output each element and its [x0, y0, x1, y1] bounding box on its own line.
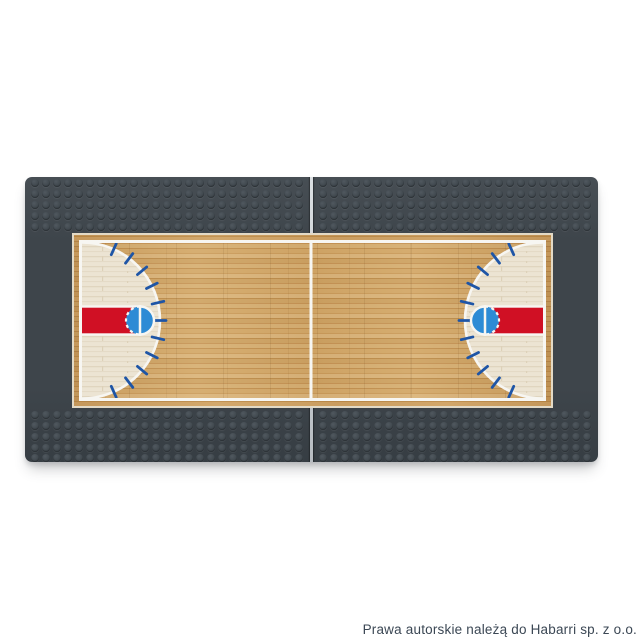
- stud: [207, 190, 215, 198]
- stud: [64, 444, 72, 452]
- stud: [352, 444, 360, 452]
- stud: [341, 201, 349, 209]
- stud: [528, 190, 536, 198]
- stud: [550, 454, 558, 462]
- stud: [495, 433, 503, 441]
- stud: [550, 422, 558, 430]
- stud: [141, 422, 149, 430]
- stud: [341, 433, 349, 441]
- stud: [352, 454, 360, 462]
- stud: [108, 433, 116, 441]
- stud: [174, 422, 182, 430]
- stud: [561, 444, 569, 452]
- stud: [473, 454, 481, 462]
- stud: [273, 212, 281, 220]
- stud: [561, 223, 569, 231]
- stud: [517, 201, 525, 209]
- stud: [385, 433, 393, 441]
- stud: [86, 433, 94, 441]
- stud: [119, 444, 127, 452]
- stud: [119, 411, 127, 419]
- stud: [31, 179, 39, 187]
- stud: [108, 179, 116, 187]
- stud: [152, 223, 160, 231]
- stud: [262, 212, 270, 220]
- stud: [396, 454, 404, 462]
- stud: [517, 179, 525, 187]
- stud: [218, 433, 226, 441]
- stud: [363, 201, 371, 209]
- stud: [506, 422, 514, 430]
- stud: [363, 444, 371, 452]
- stud: [218, 454, 226, 462]
- stud: [429, 433, 437, 441]
- stud: [207, 223, 215, 231]
- stud: [273, 433, 281, 441]
- stud: [75, 201, 83, 209]
- stud: [251, 444, 259, 452]
- court-print: [72, 233, 553, 408]
- stud: [539, 433, 547, 441]
- stud: [451, 422, 459, 430]
- stud: [352, 179, 360, 187]
- stud: [363, 411, 371, 419]
- stud: [251, 422, 259, 430]
- stud: [407, 179, 415, 187]
- stud: [528, 411, 536, 419]
- stud: [517, 422, 525, 430]
- stud: [251, 212, 259, 220]
- stud: [119, 201, 127, 209]
- stud: [119, 223, 127, 231]
- stud: [506, 190, 514, 198]
- stud: [506, 223, 514, 231]
- stud: [141, 411, 149, 419]
- stud: [374, 411, 382, 419]
- stud: [473, 444, 481, 452]
- stud: [86, 179, 94, 187]
- stud: [163, 201, 171, 209]
- stud: [218, 411, 226, 419]
- stud: [53, 411, 61, 419]
- stud: [64, 433, 72, 441]
- stud: [462, 223, 470, 231]
- stud: [141, 454, 149, 462]
- stud: [440, 422, 448, 430]
- stud: [341, 190, 349, 198]
- stud: [341, 212, 349, 220]
- stud: [440, 212, 448, 220]
- stud: [495, 422, 503, 430]
- stud: [319, 190, 327, 198]
- stud: [429, 223, 437, 231]
- stud: [451, 454, 459, 462]
- stud: [284, 433, 292, 441]
- stud: [174, 433, 182, 441]
- stud: [284, 454, 292, 462]
- stud: [119, 212, 127, 220]
- stud: [572, 179, 580, 187]
- stud: [418, 411, 426, 419]
- stud: [363, 454, 371, 462]
- stud: [506, 201, 514, 209]
- stud: [152, 454, 160, 462]
- stud: [152, 422, 160, 430]
- stud: [53, 433, 61, 441]
- stud: [528, 179, 536, 187]
- stud: [495, 179, 503, 187]
- stud: [185, 454, 193, 462]
- stud: [352, 201, 360, 209]
- stud: [75, 422, 83, 430]
- court-boundary-line: [79, 240, 546, 401]
- stud: [284, 190, 292, 198]
- stud: [262, 190, 270, 198]
- stud: [185, 433, 193, 441]
- stud: [484, 444, 492, 452]
- stud: [451, 433, 459, 441]
- stud: [218, 190, 226, 198]
- stud: [451, 411, 459, 419]
- stud: [517, 433, 525, 441]
- stud: [407, 201, 415, 209]
- stud: [583, 223, 591, 231]
- stud: [152, 190, 160, 198]
- stud: [240, 411, 248, 419]
- stud: [42, 190, 50, 198]
- stud: [42, 422, 50, 430]
- stud: [141, 444, 149, 452]
- stud: [64, 454, 72, 462]
- stud: [385, 212, 393, 220]
- stud: [363, 422, 371, 430]
- stud: [196, 201, 204, 209]
- stud: [319, 201, 327, 209]
- stud: [284, 212, 292, 220]
- stud: [196, 212, 204, 220]
- stud: [484, 201, 492, 209]
- stud: [429, 201, 437, 209]
- stud: [451, 223, 459, 231]
- stud: [440, 444, 448, 452]
- stud: [218, 201, 226, 209]
- stud: [319, 179, 327, 187]
- stud: [341, 179, 349, 187]
- stud: [42, 179, 50, 187]
- stud: [506, 179, 514, 187]
- stud: [572, 201, 580, 209]
- stud: [374, 190, 382, 198]
- stud: [396, 201, 404, 209]
- stud: [284, 411, 292, 419]
- stud: [352, 190, 360, 198]
- stud: [440, 190, 448, 198]
- stud: [141, 433, 149, 441]
- stud: [31, 223, 39, 231]
- stud: [440, 201, 448, 209]
- stud: [550, 444, 558, 452]
- stud: [130, 223, 138, 231]
- stud: [495, 223, 503, 231]
- stud: [341, 454, 349, 462]
- stud: [506, 212, 514, 220]
- product-photo: Prawa autorskie należą do Habarri sp. z …: [0, 0, 640, 640]
- stud: [385, 454, 393, 462]
- stud: [229, 201, 237, 209]
- copyright-watermark: Prawa autorskie należą do Habarri sp. z …: [363, 622, 637, 637]
- stud: [64, 190, 72, 198]
- stud: [31, 433, 39, 441]
- stud: [539, 223, 547, 231]
- stud: [418, 444, 426, 452]
- stud: [572, 444, 580, 452]
- stud: [64, 212, 72, 220]
- stud: [429, 411, 437, 419]
- stud: [561, 454, 569, 462]
- stud: [97, 212, 105, 220]
- stud: [396, 422, 404, 430]
- stud: [572, 433, 580, 441]
- stud: [163, 190, 171, 198]
- stud: [484, 179, 492, 187]
- stud: [473, 411, 481, 419]
- stud: [108, 411, 116, 419]
- stud: [572, 190, 580, 198]
- stud: [251, 454, 259, 462]
- stud: [539, 411, 547, 419]
- stud: [152, 179, 160, 187]
- stud: [330, 433, 338, 441]
- stud: [506, 454, 514, 462]
- stud: [185, 201, 193, 209]
- stud: [295, 444, 303, 452]
- stud: [273, 411, 281, 419]
- stud: [506, 433, 514, 441]
- stud: [418, 454, 426, 462]
- stud: [218, 179, 226, 187]
- stud: [484, 223, 492, 231]
- stud: [97, 454, 105, 462]
- stud: [440, 454, 448, 462]
- stud: [174, 444, 182, 452]
- stud: [572, 454, 580, 462]
- stud: [86, 190, 94, 198]
- stud: [528, 212, 536, 220]
- stud: [31, 201, 39, 209]
- stud: [42, 212, 50, 220]
- stud: [229, 411, 237, 419]
- stud: [174, 223, 182, 231]
- stud: [429, 454, 437, 462]
- stud: [141, 212, 149, 220]
- stud: [528, 454, 536, 462]
- stud: [273, 454, 281, 462]
- stud: [550, 201, 558, 209]
- stud: [352, 422, 360, 430]
- stud: [262, 201, 270, 209]
- stud: [240, 433, 248, 441]
- stud: [64, 411, 72, 419]
- stud: [229, 212, 237, 220]
- stud: [97, 411, 105, 419]
- stud: [240, 223, 248, 231]
- stud: [473, 201, 481, 209]
- stud: [240, 444, 248, 452]
- stud: [174, 411, 182, 419]
- stud: [207, 179, 215, 187]
- stud: [517, 190, 525, 198]
- stud: [174, 212, 182, 220]
- stud: [341, 444, 349, 452]
- stud: [561, 190, 569, 198]
- stud: [418, 433, 426, 441]
- stud: [196, 454, 204, 462]
- stud: [330, 190, 338, 198]
- stud: [262, 223, 270, 231]
- stud: [506, 444, 514, 452]
- stud: [473, 212, 481, 220]
- stud: [396, 433, 404, 441]
- stud: [185, 411, 193, 419]
- stud: [108, 212, 116, 220]
- stud: [42, 433, 50, 441]
- stud: [240, 201, 248, 209]
- stud: [572, 212, 580, 220]
- stud: [440, 433, 448, 441]
- stud: [451, 212, 459, 220]
- stud: [251, 411, 259, 419]
- stud: [207, 454, 215, 462]
- stud: [451, 179, 459, 187]
- stud: [396, 212, 404, 220]
- stud: [141, 179, 149, 187]
- stud: [53, 179, 61, 187]
- stud: [196, 179, 204, 187]
- stud: [207, 411, 215, 419]
- stud: [130, 411, 138, 419]
- stud: [330, 454, 338, 462]
- stud: [528, 201, 536, 209]
- stud: [484, 411, 492, 419]
- stud: [517, 444, 525, 452]
- stud: [319, 212, 327, 220]
- stud: [273, 179, 281, 187]
- stud: [484, 212, 492, 220]
- stud: [363, 433, 371, 441]
- stud: [229, 444, 237, 452]
- stud: [119, 454, 127, 462]
- stud: [418, 223, 426, 231]
- stud: [572, 411, 580, 419]
- stud: [86, 201, 94, 209]
- stud: [229, 433, 237, 441]
- stud: [330, 223, 338, 231]
- stud: [108, 454, 116, 462]
- stud: [273, 190, 281, 198]
- stud: [539, 201, 547, 209]
- stud: [550, 433, 558, 441]
- stud: [363, 190, 371, 198]
- stud: [484, 433, 492, 441]
- stud: [330, 444, 338, 452]
- stud: [374, 422, 382, 430]
- stud: [495, 444, 503, 452]
- stud: [75, 454, 83, 462]
- stud: [185, 422, 193, 430]
- stud: [218, 444, 226, 452]
- stud: [319, 444, 327, 452]
- stud: [451, 190, 459, 198]
- stud: [130, 433, 138, 441]
- stud: [583, 454, 591, 462]
- stud: [163, 179, 171, 187]
- stud: [407, 411, 415, 419]
- stud: [473, 422, 481, 430]
- stud: [374, 201, 382, 209]
- stud: [583, 179, 591, 187]
- stud: [528, 422, 536, 430]
- stud: [130, 179, 138, 187]
- stud: [583, 212, 591, 220]
- stud: [75, 212, 83, 220]
- stud: [407, 190, 415, 198]
- stud: [561, 212, 569, 220]
- stud: [407, 212, 415, 220]
- stud: [484, 454, 492, 462]
- stud: [295, 223, 303, 231]
- stud: [561, 411, 569, 419]
- stud: [418, 179, 426, 187]
- stud: [517, 212, 525, 220]
- stud: [108, 422, 116, 430]
- stud: [341, 223, 349, 231]
- stud: [284, 223, 292, 231]
- stud: [396, 444, 404, 452]
- stud: [86, 212, 94, 220]
- stud: [119, 422, 127, 430]
- stud: [141, 201, 149, 209]
- stud: [97, 422, 105, 430]
- stud: [539, 179, 547, 187]
- stud: [262, 433, 270, 441]
- stud: [251, 223, 259, 231]
- stud: [284, 179, 292, 187]
- stud: [295, 454, 303, 462]
- stud: [374, 444, 382, 452]
- stud: [407, 444, 415, 452]
- stud: [473, 223, 481, 231]
- stud: [319, 422, 327, 430]
- stud: [495, 411, 503, 419]
- stud: [174, 179, 182, 187]
- stud: [385, 201, 393, 209]
- stud: [207, 212, 215, 220]
- stud: [251, 190, 259, 198]
- stud: [363, 212, 371, 220]
- stud: [295, 411, 303, 419]
- stud: [583, 422, 591, 430]
- stud: [330, 422, 338, 430]
- stud: [385, 190, 393, 198]
- stud: [374, 454, 382, 462]
- stud: [583, 201, 591, 209]
- stud: [319, 433, 327, 441]
- stud: [407, 454, 415, 462]
- stud: [385, 223, 393, 231]
- stud: [262, 454, 270, 462]
- stud: [163, 444, 171, 452]
- stud: [207, 422, 215, 430]
